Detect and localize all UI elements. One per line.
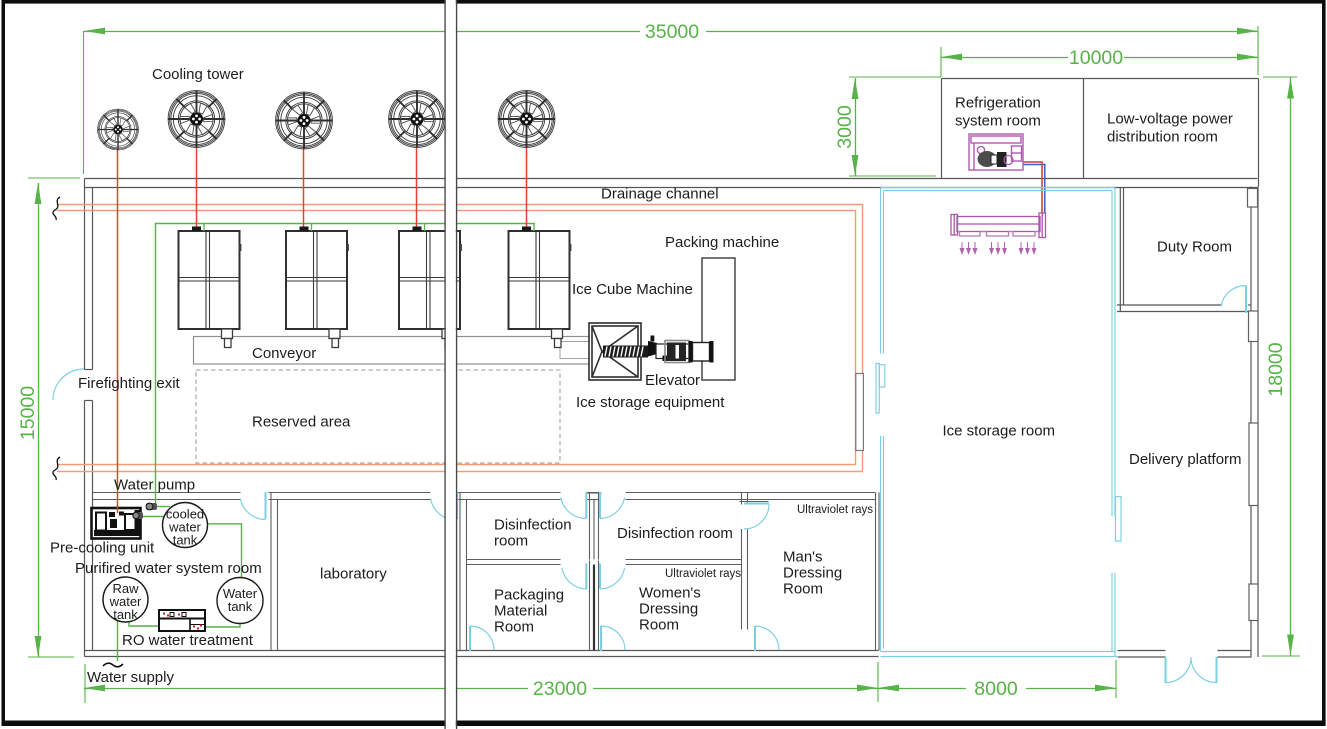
svg-text:8000: 8000 <box>974 678 1018 700</box>
svg-text:Room: Room <box>639 617 679 634</box>
svg-text:3000: 3000 <box>834 105 856 149</box>
svg-text:Pre-cooling unit: Pre-cooling unit <box>50 540 155 557</box>
svg-text:room: room <box>494 533 528 550</box>
svg-text:Ice storage equipment: Ice storage equipment <box>576 394 725 411</box>
svg-text:Man's: Man's <box>783 549 823 566</box>
svg-text:tank: tank <box>173 533 198 548</box>
svg-text:Conveyor: Conveyor <box>252 345 316 362</box>
svg-text:15000: 15000 <box>17 386 39 440</box>
svg-text:Ultraviolet rays: Ultraviolet rays <box>797 504 873 516</box>
svg-text:Ice Cube Machine: Ice Cube Machine <box>572 281 693 298</box>
svg-text:Ultraviolet rays: Ultraviolet rays <box>665 568 741 580</box>
svg-text:Purifired water system room: Purifired water system room <box>75 560 262 577</box>
svg-text:Firefighting exit: Firefighting exit <box>78 375 181 392</box>
svg-text:Material: Material <box>494 603 547 620</box>
svg-text:Water pump: Water pump <box>114 477 195 494</box>
svg-text:Reserved area: Reserved area <box>252 414 351 431</box>
svg-text:Duty Room: Duty Room <box>1157 239 1232 256</box>
svg-text:18000: 18000 <box>1265 342 1287 396</box>
svg-text:35000: 35000 <box>645 21 699 43</box>
svg-text:RO water treatment: RO water treatment <box>122 632 254 649</box>
svg-text:Drainage channel: Drainage channel <box>601 186 719 203</box>
svg-text:Delivery platform: Delivery platform <box>1129 451 1242 468</box>
svg-text:distribution room: distribution room <box>1107 129 1218 146</box>
svg-text:Women's: Women's <box>639 585 701 602</box>
svg-text:Ice storage room: Ice storage room <box>943 423 1056 440</box>
svg-text:Cooling tower: Cooling tower <box>152 66 244 83</box>
svg-text:Dressing: Dressing <box>783 565 842 582</box>
svg-text:Packing machine: Packing machine <box>665 234 779 251</box>
svg-text:Dressing: Dressing <box>639 601 698 618</box>
svg-text:Water supply: Water supply <box>87 669 174 686</box>
svg-text:Room: Room <box>783 581 823 598</box>
svg-text:Low-voltage power: Low-voltage power <box>1107 111 1233 128</box>
svg-text:Room: Room <box>494 619 534 636</box>
svg-text:laboratory: laboratory <box>320 566 387 583</box>
svg-text:tank: tank <box>113 607 138 622</box>
svg-text:system room: system room <box>955 113 1041 130</box>
svg-text:Refrigeration: Refrigeration <box>955 95 1041 112</box>
svg-text:10000: 10000 <box>1069 47 1123 69</box>
svg-text:tank: tank <box>228 599 253 614</box>
svg-text:Disinfection room: Disinfection room <box>617 525 733 542</box>
svg-text:Elevator: Elevator <box>645 372 700 389</box>
svg-text:Packaging: Packaging <box>494 587 564 604</box>
svg-text:23000: 23000 <box>533 678 587 700</box>
svg-text:Disinfection: Disinfection <box>494 517 572 534</box>
